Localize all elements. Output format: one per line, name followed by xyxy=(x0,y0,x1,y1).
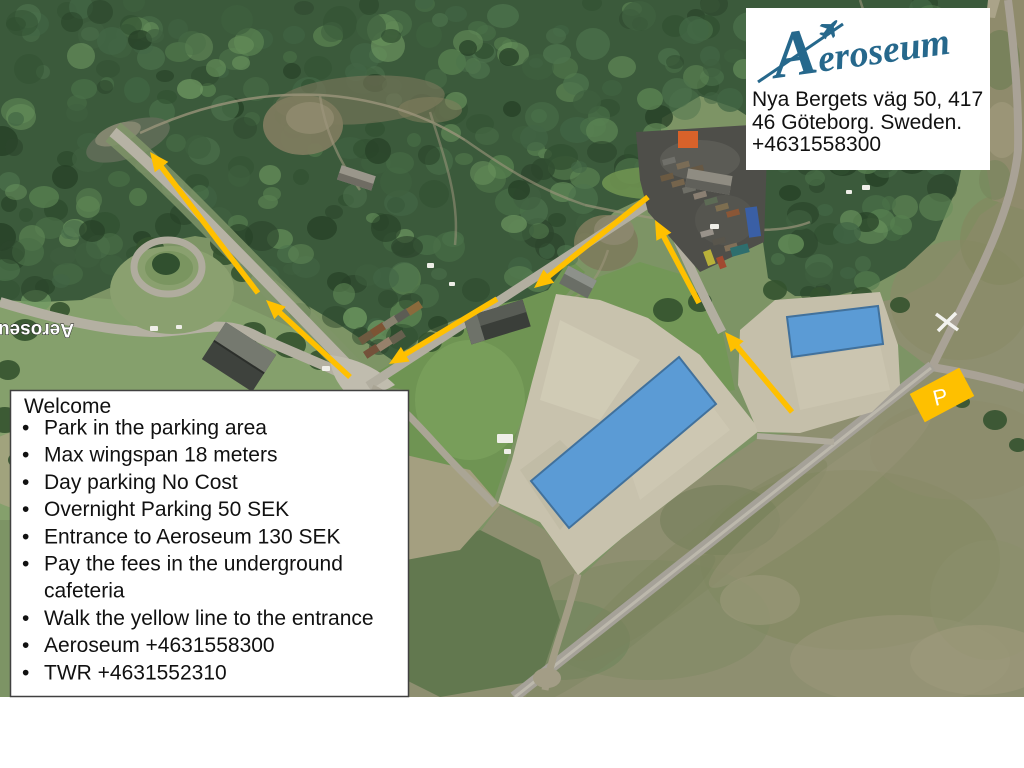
svg-text:•: • xyxy=(22,525,29,548)
svg-text:+4631558300: +4631558300 xyxy=(752,133,881,156)
svg-text:Overnight Parking 50 SEK: Overnight Parking 50 SEK xyxy=(44,498,289,521)
svg-text:•: • xyxy=(22,553,29,576)
svg-text:•: • xyxy=(22,607,29,630)
svg-text:Entrance to Aeroseum 130 SEK: Entrance to Aeroseum 130 SEK xyxy=(44,525,341,548)
svg-text:46 Göteborg. Sweden.: 46 Göteborg. Sweden. xyxy=(752,111,962,134)
svg-text:•: • xyxy=(22,471,29,494)
svg-text:•: • xyxy=(22,444,29,467)
svg-text:Aeroseum: Aeroseum xyxy=(0,319,74,340)
svg-text:•: • xyxy=(22,634,29,657)
svg-text:Welcome: Welcome xyxy=(24,395,111,418)
svg-text:Pay the fees in the undergroun: Pay the fees in the underground xyxy=(44,553,343,576)
svg-text:Aeroseum +4631558300: Aeroseum +4631558300 xyxy=(44,634,275,657)
svg-text:•: • xyxy=(22,417,29,440)
svg-text:Day parking No Cost: Day parking No Cost xyxy=(44,471,238,494)
svg-text:Park in the parking area: Park in the parking area xyxy=(44,417,267,440)
svg-text:Nya Bergets väg 50, 417: Nya Bergets väg 50, 417 xyxy=(752,88,983,111)
svg-text:Walk the yellow line to the en: Walk the yellow line to the entrance xyxy=(44,607,374,630)
svg-text:Max wingspan 18 meters: Max wingspan 18 meters xyxy=(44,444,277,467)
svg-text:•: • xyxy=(22,661,29,684)
svg-text:cafeteria: cafeteria xyxy=(44,580,125,603)
svg-text:TWR +4631552310: TWR +4631552310 xyxy=(44,661,227,684)
svg-text:•: • xyxy=(22,498,29,521)
